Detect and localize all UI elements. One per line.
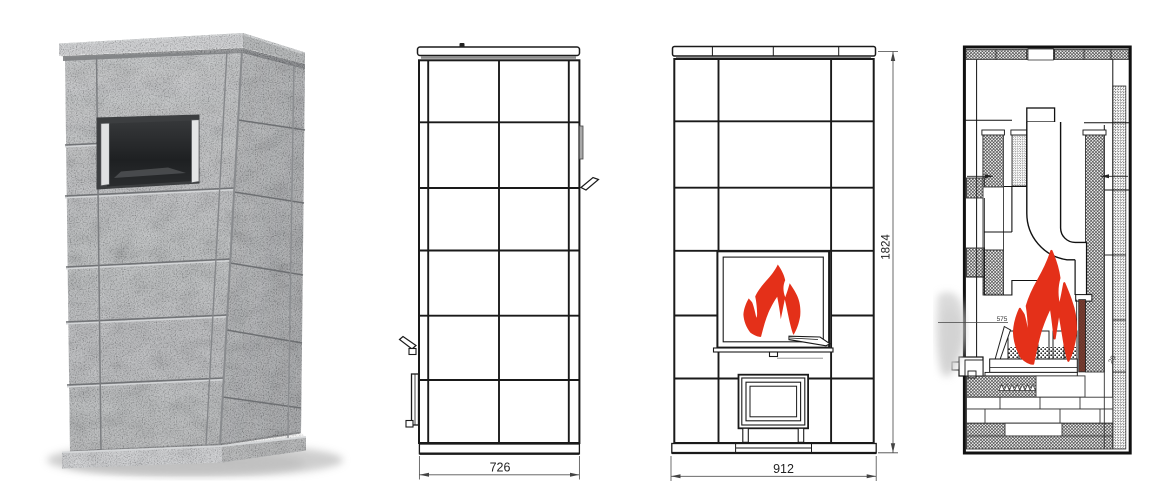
svg-text:575: 575 (997, 316, 1008, 323)
svg-text:726: 726 (490, 461, 511, 475)
svg-text:1824: 1824 (881, 234, 893, 260)
svg-text:912: 912 (773, 462, 794, 476)
